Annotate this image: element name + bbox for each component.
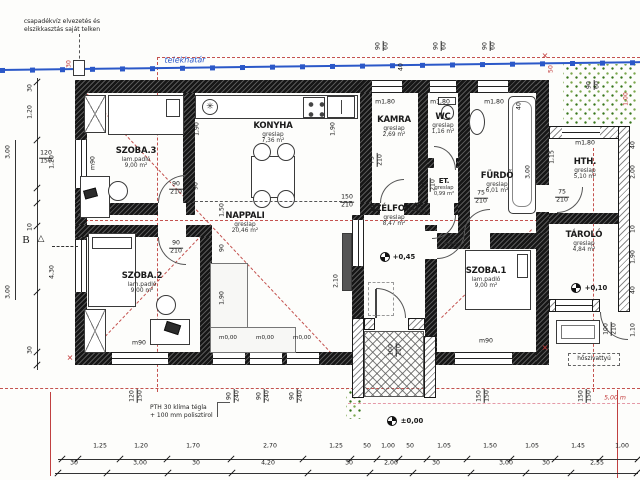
stove xyxy=(303,97,325,118)
wall-furdo-south-b xyxy=(490,233,549,249)
window-szoba1-south xyxy=(455,352,512,365)
dim-label: 40 xyxy=(630,141,637,149)
label-door-et: 75210 xyxy=(413,203,427,218)
window-hth-north xyxy=(562,126,600,139)
dim-label: 2,55 xyxy=(590,460,604,467)
dim-label: 3,00 xyxy=(133,460,147,467)
dim-right-100: 1,00 xyxy=(623,92,630,106)
dining-chair-3 xyxy=(253,190,271,208)
dim-label: 1,50 xyxy=(483,443,497,450)
property-boundary-line xyxy=(0,58,640,74)
dim-eave-50: 50 xyxy=(548,65,555,73)
window-szoba2-west xyxy=(75,240,87,292)
sill-nappali: m0,00 xyxy=(256,335,274,341)
wall-szelfogo-south-b xyxy=(408,318,425,330)
konyha-nappali-divider xyxy=(195,201,352,202)
label-door-szoba3: 90210 xyxy=(169,182,183,197)
dim-label: 3,00 xyxy=(5,285,12,299)
wall-hth-tarolo xyxy=(549,213,618,224)
dim-stove-40: 40 xyxy=(398,63,405,71)
wall-east-upper xyxy=(536,80,549,185)
room-label-szoba2: SZOBA.2lam.padló9,00 m² xyxy=(122,272,162,294)
dim-s210: 2,10 xyxy=(333,274,340,288)
shoe-cabinet xyxy=(368,282,394,316)
sill-hth: m1,80 xyxy=(575,140,595,147)
dim-tick xyxy=(633,469,640,476)
sill-szoba3: m90 xyxy=(90,156,97,170)
label-door-wc: 75210 xyxy=(423,178,438,192)
window-wc-north xyxy=(430,80,456,93)
dim-label: 30 xyxy=(27,84,34,92)
survey-cross-icon: ✕ xyxy=(542,344,549,353)
survey-cross-icon: ✕ xyxy=(542,52,549,61)
label-window-dim: 9060 xyxy=(483,41,498,51)
window-nappali-south-1 xyxy=(213,352,245,365)
wall-wing-south-a xyxy=(549,299,556,312)
soakaway-symbol xyxy=(73,60,85,76)
window-kamra-north xyxy=(372,80,402,93)
dim-label: 40 xyxy=(630,286,637,294)
floor-plan: telekhatár xyxy=(0,0,640,480)
sofa-vertical xyxy=(210,263,248,337)
dim-label: 1,05 xyxy=(437,443,451,450)
label-opening-dim: 90240 xyxy=(227,389,242,403)
dim-kr190: 1,90 xyxy=(330,122,337,136)
dim-label: 50 xyxy=(406,443,414,450)
dim-label: 1,90 xyxy=(630,250,637,264)
dim-tub-40: 40 xyxy=(516,102,523,110)
dim-label: 30 xyxy=(542,460,550,467)
level-marker-icon xyxy=(571,283,581,293)
level-ground: ±0,00 xyxy=(401,417,423,425)
room-label-szoba3: SZOBA.3lam.padló9,00 m² xyxy=(116,147,156,169)
label-door-tarolo: 100210 xyxy=(604,322,619,336)
dim-n150: 1,50 xyxy=(219,203,226,217)
wall-porch-left xyxy=(352,318,364,398)
dim-label: 4,30 xyxy=(49,265,56,279)
room-label-kamra: KAMRAgreslap2,69 m² xyxy=(377,116,411,138)
room-label-nappali: NAPPALIgreslap20,46 m² xyxy=(225,212,264,234)
level-entry: +0,45 xyxy=(393,253,415,261)
level-marker-icon xyxy=(387,416,397,426)
dim-eave-30: 30 xyxy=(66,60,73,68)
level-marker-icon xyxy=(380,252,390,262)
window-nappali-south-3 xyxy=(287,352,319,365)
label-opening-dim: 150150 xyxy=(579,389,594,403)
label-window-dim: 9060 xyxy=(434,41,449,51)
dim-label: 1,20 xyxy=(134,443,148,450)
dim-label: 2,00 xyxy=(384,460,398,467)
room-label-szelfogo: SZÉLFOGÓgreslap8,47 m² xyxy=(369,205,418,227)
distance-label: 5,00 m xyxy=(604,395,626,402)
label-opening-dim: 120150 xyxy=(130,389,145,403)
window-szoba2-south xyxy=(112,352,168,365)
dim-label: 1,25 xyxy=(93,443,107,450)
dim-label: 3,00 xyxy=(499,460,513,467)
wall-szoba2-north-b xyxy=(186,225,212,237)
sill-wc: m1,80 xyxy=(430,99,450,106)
window-nappali-szelfogo xyxy=(352,220,364,266)
dim-chain-line-bottom-2 xyxy=(55,473,638,474)
dining-chair-1 xyxy=(253,143,271,161)
door-kamra xyxy=(380,179,404,203)
chair-szoba3 xyxy=(108,181,128,201)
pillow-szoba2 xyxy=(92,237,132,249)
label-opening-dim: 150150 xyxy=(477,389,492,403)
label-window-dim: 9060 xyxy=(587,80,602,90)
dim-label: 1,00 xyxy=(615,443,629,450)
wardrobe-szoba3 xyxy=(84,95,106,133)
label-window-szelfogo: 150210 xyxy=(340,195,354,210)
sill-nappali: m0,00 xyxy=(219,335,237,341)
wall-szelfogo-south-a xyxy=(364,318,375,330)
label-door-furdo: 75210 xyxy=(474,191,488,206)
wall-szoba3-south-b xyxy=(186,203,195,215)
wardrobe-szoba2 xyxy=(84,309,106,353)
heat-pump-label-box: hőszivattyú xyxy=(568,353,620,366)
room-label-hth: HTH.greslap5,10 m² xyxy=(574,158,597,180)
room-label-tarolo: TÁROLÓgreslap4,84 m² xyxy=(566,231,603,253)
dim-label: 1,20 xyxy=(49,155,56,169)
dim-k190: 1,90 xyxy=(194,122,201,136)
dim-label: 10 xyxy=(27,223,34,231)
dim-label: 4,20 xyxy=(261,460,275,467)
sill-szoba2: m90 xyxy=(132,340,146,347)
boiler-icon: ✳ xyxy=(202,99,218,115)
dim-label: 30 xyxy=(27,346,34,354)
label-door-hth: 75210 xyxy=(555,190,569,205)
window-furdo-north xyxy=(478,80,508,93)
room-label-wc: WCgreslap1,16 m² xyxy=(432,113,455,135)
wall-porch-right xyxy=(424,336,436,398)
setback-line-top xyxy=(157,57,640,58)
sill-kamra: m1,80 xyxy=(375,99,395,106)
dining-chair-4 xyxy=(277,190,295,208)
wall-wing-east xyxy=(618,126,630,312)
dim-label: 1,45 xyxy=(571,443,585,450)
dim-label: 10 xyxy=(630,225,637,233)
dim-label: 1,05 xyxy=(525,443,539,450)
dim-label: 1,25 xyxy=(329,443,343,450)
pillow-szoba3 xyxy=(166,99,180,117)
dim-label: 30 xyxy=(345,460,353,467)
label-opening-dim: 90240 xyxy=(290,389,305,403)
dining-chair-2 xyxy=(277,143,295,161)
dim-tub-300: 3,00 xyxy=(525,165,532,179)
section-label: B xyxy=(22,234,29,246)
dim-n90: 90 xyxy=(219,244,226,252)
boundary-label: telekhatár xyxy=(164,55,205,65)
level-storage: +0,10 xyxy=(585,284,607,292)
dim-label: 50 xyxy=(363,443,371,450)
room-label-szoba1: SZOBA.1lam.padló9,00 m² xyxy=(466,267,506,289)
wall-construction-note: PTH 30 klíma tégla + 100 mm polisztirol xyxy=(150,404,226,420)
survey-cross-icon: ✕ xyxy=(67,354,74,363)
dim-k90: 90 xyxy=(193,182,200,190)
label-door-kamra: 75210 xyxy=(370,153,385,167)
heat-pump-inner xyxy=(561,325,595,339)
label-door-entry: 100210 xyxy=(389,343,404,357)
dim-label: 30 xyxy=(70,460,78,467)
survey-line-right xyxy=(617,390,618,478)
dim-n190: 1,90 xyxy=(219,291,226,305)
window-tarolo-south xyxy=(556,299,592,312)
label-door-szoba2: 90210 xyxy=(169,241,183,256)
dim-label: 30 xyxy=(192,460,200,467)
window-nappali-south-2 xyxy=(250,352,282,365)
wall-wing-south-b xyxy=(592,299,600,312)
dim-115: 1,15 xyxy=(549,150,556,164)
survey-line-left xyxy=(50,392,51,476)
boundary-line-bottom xyxy=(0,388,640,389)
section-line xyxy=(52,246,78,247)
label-door-szoba1: 90210 xyxy=(444,236,458,251)
sill-nappali: m0,00 xyxy=(293,335,311,341)
label-window-dim: 9060 xyxy=(376,41,391,51)
bathtub-inner xyxy=(512,101,532,207)
dim-label: 1,70 xyxy=(186,443,200,450)
kitchen-sink xyxy=(327,96,355,118)
label-opening-dim: 90240 xyxy=(257,389,272,403)
dim-chain-line-left-2 xyxy=(15,140,16,300)
section-triangle-icon: △ xyxy=(38,234,45,244)
pillow-szoba1 xyxy=(517,254,528,278)
dim-label: 3,00 xyxy=(5,145,12,159)
door-wc xyxy=(434,146,456,170)
sill-szoba1: m90 xyxy=(479,338,493,345)
chair-szoba2 xyxy=(156,295,176,315)
dim-label: 1,20 xyxy=(27,105,34,119)
sill-furdo: m1,80 xyxy=(484,99,504,106)
washbasin xyxy=(469,109,485,135)
tv-cabinet xyxy=(342,233,352,291)
dim-label: 1,00 xyxy=(381,443,395,450)
dim-label: 1,10 xyxy=(630,323,637,337)
dim-label: 2,70 xyxy=(263,443,277,450)
dim-label: 2,00 xyxy=(630,165,637,179)
room-label-konyha: KONYHAgreslap7,36 m² xyxy=(253,122,292,144)
dim-label: 30 xyxy=(432,460,440,467)
distance-line xyxy=(348,403,640,404)
entry-porch-slab xyxy=(364,331,424,397)
drain-note: csapadékvíz elvezetés és elszikkasztás s… xyxy=(6,18,100,34)
